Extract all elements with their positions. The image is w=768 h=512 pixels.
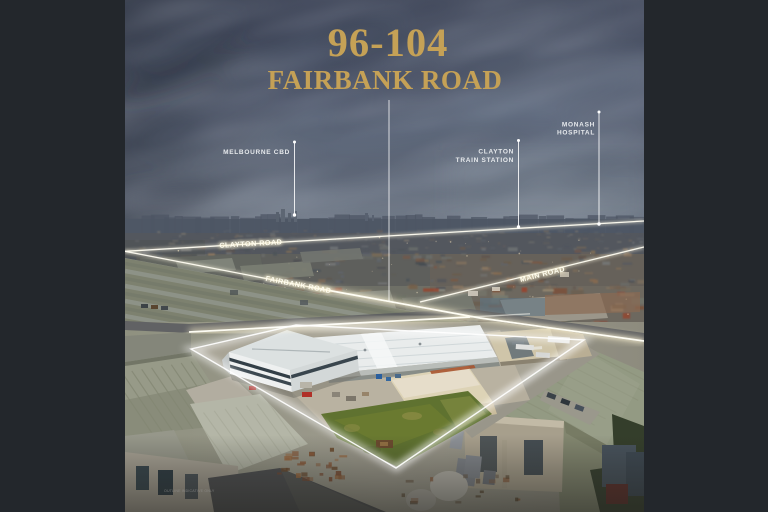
svg-text:TRAIN STATION: TRAIN STATION <box>456 157 514 164</box>
svg-text:FAIRBANK ROAD: FAIRBANK ROAD <box>268 65 503 95</box>
svg-text:MONASH: MONASH <box>562 121 595 128</box>
svg-text:CLAYTON: CLAYTON <box>478 149 514 156</box>
svg-text:96-104: 96-104 <box>328 20 449 65</box>
svg-text:OUTLINE INDICATIVE ONLY: OUTLINE INDICATIVE ONLY <box>164 489 215 493</box>
svg-text:MELBOURNE CBD: MELBOURNE CBD <box>223 149 290 156</box>
svg-text:HOSPITAL: HOSPITAL <box>557 130 595 137</box>
